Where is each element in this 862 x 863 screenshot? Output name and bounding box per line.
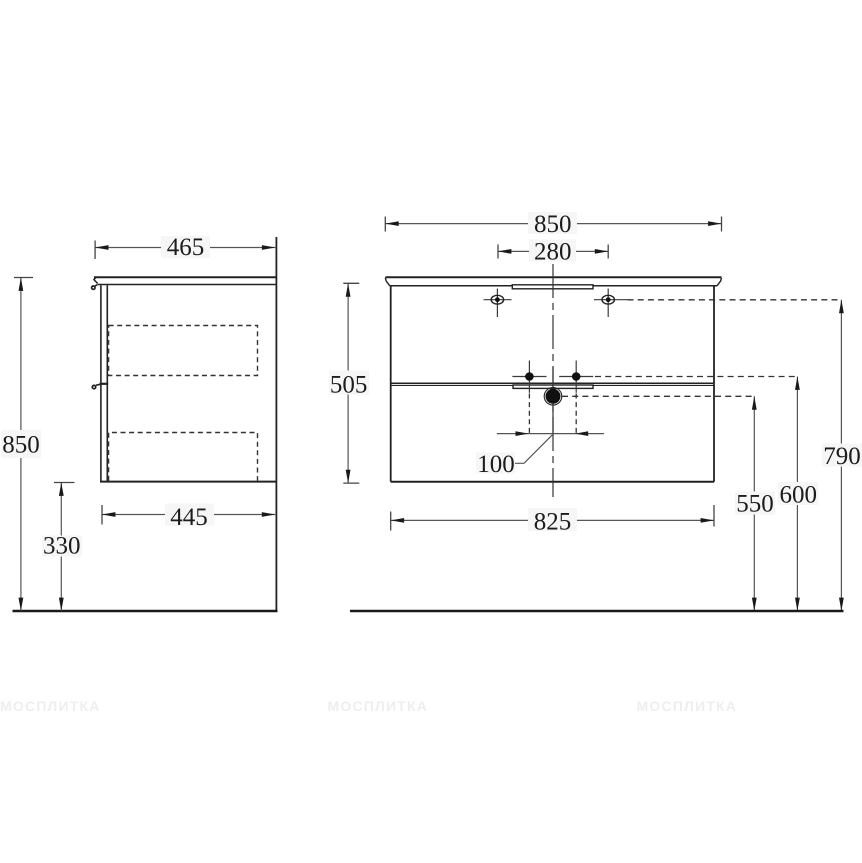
- svg-text:600: 600: [780, 482, 818, 509]
- svg-text:825: 825: [534, 509, 572, 536]
- svg-text:445: 445: [170, 504, 208, 531]
- svg-text:790: 790: [823, 443, 861, 470]
- svg-text:550: 550: [736, 491, 774, 518]
- svg-text:МОСПЛИТКА: МОСПЛИТКА: [328, 698, 429, 714]
- svg-text:850: 850: [2, 432, 40, 459]
- svg-text:100: 100: [477, 451, 515, 478]
- svg-text:330: 330: [43, 532, 81, 559]
- svg-text:280: 280: [534, 239, 572, 266]
- svg-text:МОСПЛИТКА: МОСПЛИТКА: [637, 698, 738, 714]
- svg-text:850: 850: [534, 211, 572, 238]
- svg-text:МОСПЛИТКА: МОСПЛИТКА: [0, 698, 101, 714]
- svg-text:505: 505: [330, 371, 368, 398]
- svg-text:465: 465: [167, 234, 205, 261]
